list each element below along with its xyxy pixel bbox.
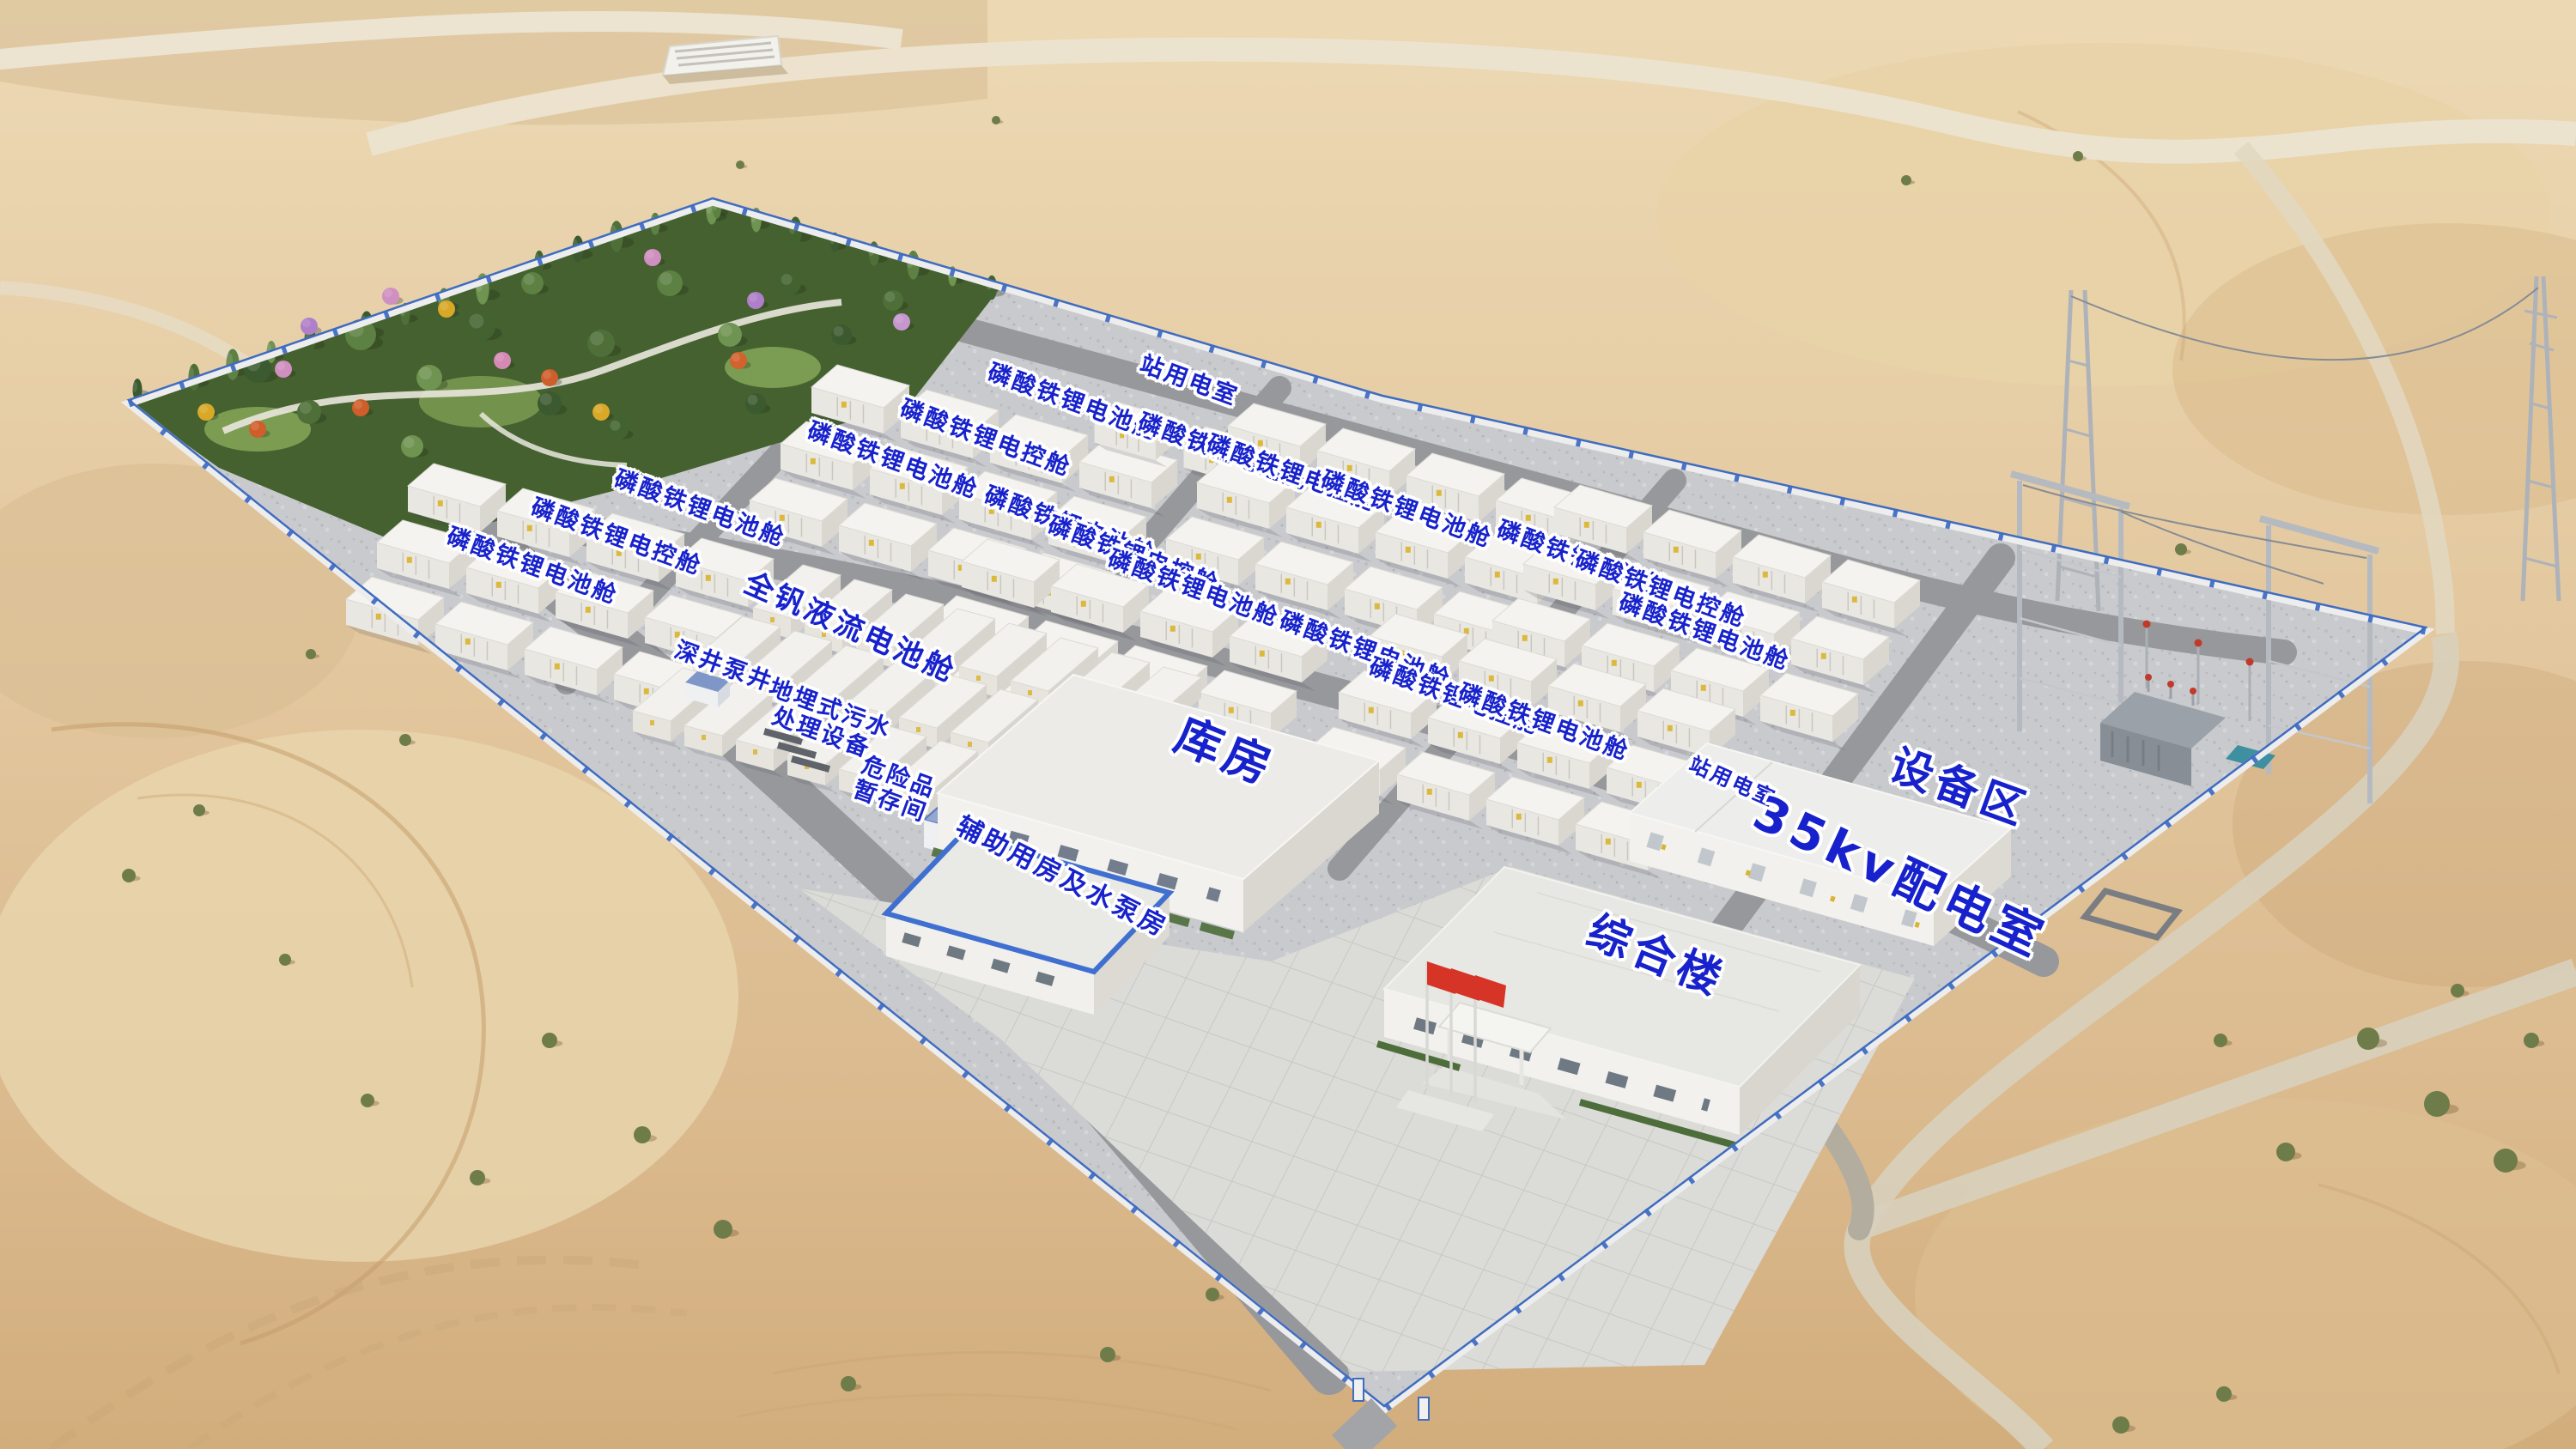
- gate-post: [1419, 1397, 1429, 1420]
- aerial-site-render: 磷酸铁锂电池舱磷酸铁锂电控舱磷酸铁锂电池舱磷酸铁锂电池舱磷酸铁锂电控舱磷酸铁锂电…: [0, 0, 2576, 1449]
- gate-road: [1345, 1412, 1384, 1449]
- gate-post: [1353, 1379, 1364, 1401]
- site-3d-scene: [0, 0, 2576, 1449]
